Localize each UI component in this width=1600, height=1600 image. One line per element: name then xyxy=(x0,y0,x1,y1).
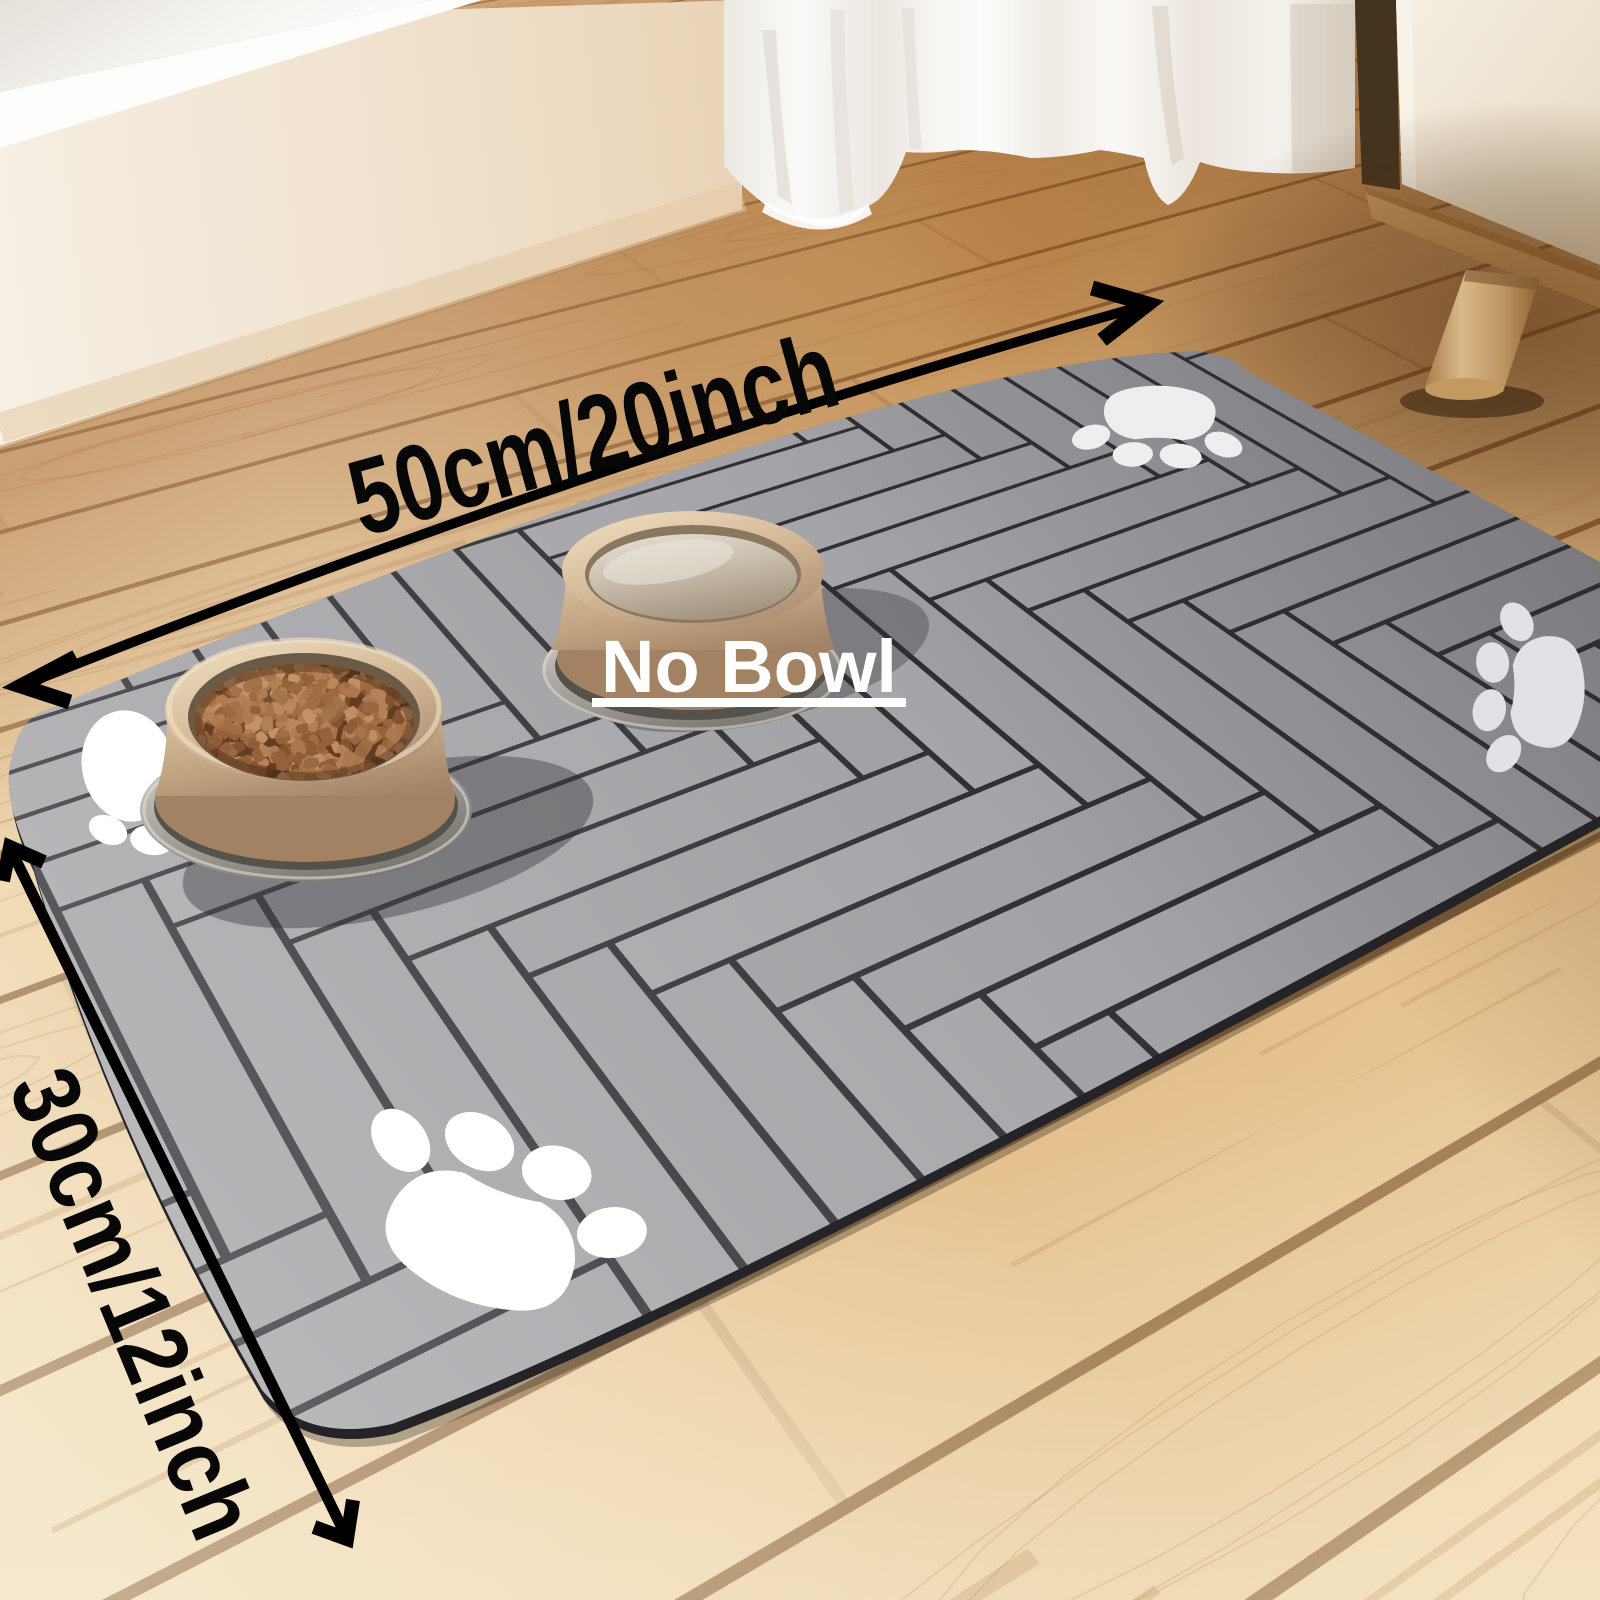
svg-text:No Bowl: No Bowl xyxy=(601,625,897,708)
